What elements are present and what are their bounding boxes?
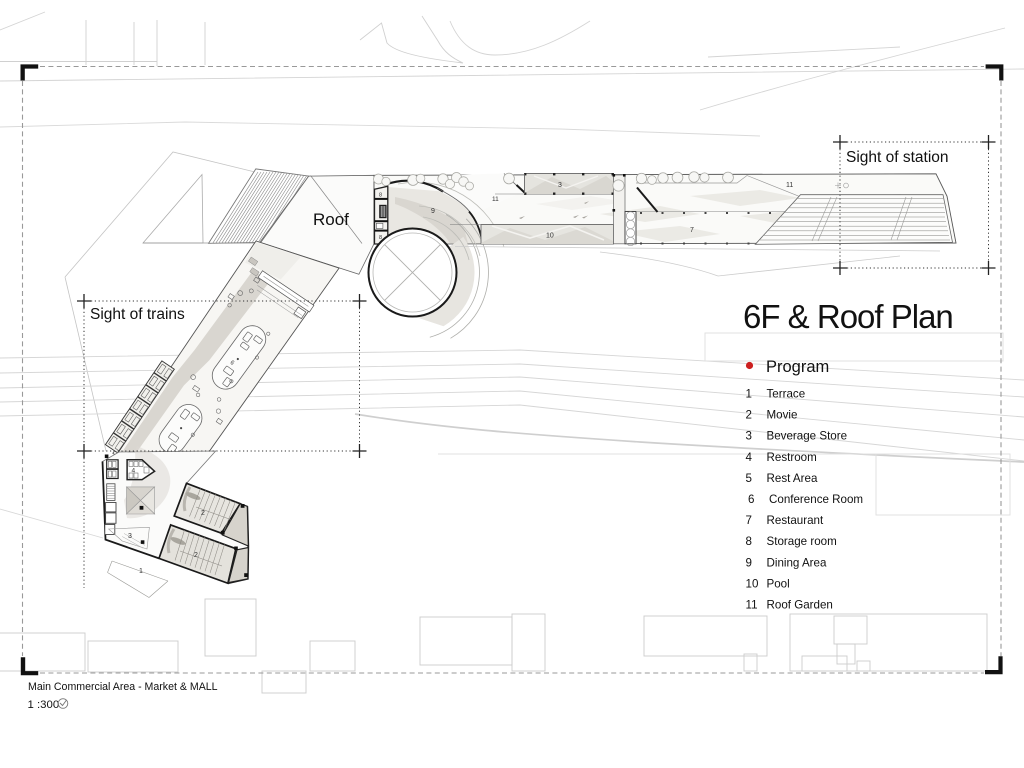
svg-text:7: 7 (746, 514, 752, 527)
svg-text:Beverage Store: Beverage Store (767, 430, 848, 443)
svg-text:1 :300: 1 :300 (28, 699, 60, 711)
svg-text:2: 2 (746, 409, 752, 422)
svg-text:6F & Roof Plan: 6F & Roof Plan (743, 298, 953, 335)
svg-text:Storage room: Storage room (767, 535, 837, 548)
svg-text:Terrace: Terrace (767, 388, 806, 401)
svg-text:Roof Garden: Roof Garden (767, 599, 833, 612)
svg-text:3: 3 (558, 182, 562, 189)
svg-text:2: 2 (194, 552, 198, 559)
svg-text:11: 11 (786, 182, 793, 189)
svg-text:7: 7 (690, 227, 694, 234)
svg-text:11: 11 (492, 196, 499, 203)
svg-text:Main Commercial Area - Market: Main Commercial Area - Market & MALL (28, 681, 218, 693)
svg-text:11: 11 (746, 599, 758, 612)
svg-text:Movie: Movie (767, 409, 798, 422)
svg-text:6: 6 (748, 493, 754, 506)
svg-text:9: 9 (746, 556, 752, 569)
svg-text:Roof: Roof (313, 210, 349, 229)
svg-text:2: 2 (201, 510, 205, 517)
svg-text:Restaurant: Restaurant (767, 514, 824, 527)
svg-text:8: 8 (746, 535, 752, 548)
svg-text:10: 10 (746, 577, 759, 590)
svg-text:Pool: Pool (767, 577, 790, 590)
svg-text:4: 4 (132, 468, 136, 475)
svg-text:Sight of trains: Sight of trains (90, 306, 185, 323)
svg-text:Dining Area: Dining Area (767, 556, 827, 569)
svg-text:1: 1 (139, 568, 143, 575)
svg-text:Sight of station: Sight of station (846, 149, 949, 166)
svg-text:Rest Area: Rest Area (767, 472, 818, 485)
svg-text:Restroom: Restroom (767, 451, 817, 464)
svg-text:3: 3 (128, 533, 132, 540)
svg-text:1: 1 (746, 388, 752, 401)
svg-text:9: 9 (431, 208, 435, 215)
svg-text:Program: Program (766, 358, 829, 376)
svg-text:3: 3 (746, 430, 752, 443)
svg-text:4: 4 (746, 451, 753, 464)
svg-text:8: 8 (379, 192, 382, 198)
svg-text:10: 10 (546, 233, 554, 240)
svg-text:Conference Room: Conference Room (769, 493, 863, 506)
svg-text:5: 5 (746, 472, 752, 485)
